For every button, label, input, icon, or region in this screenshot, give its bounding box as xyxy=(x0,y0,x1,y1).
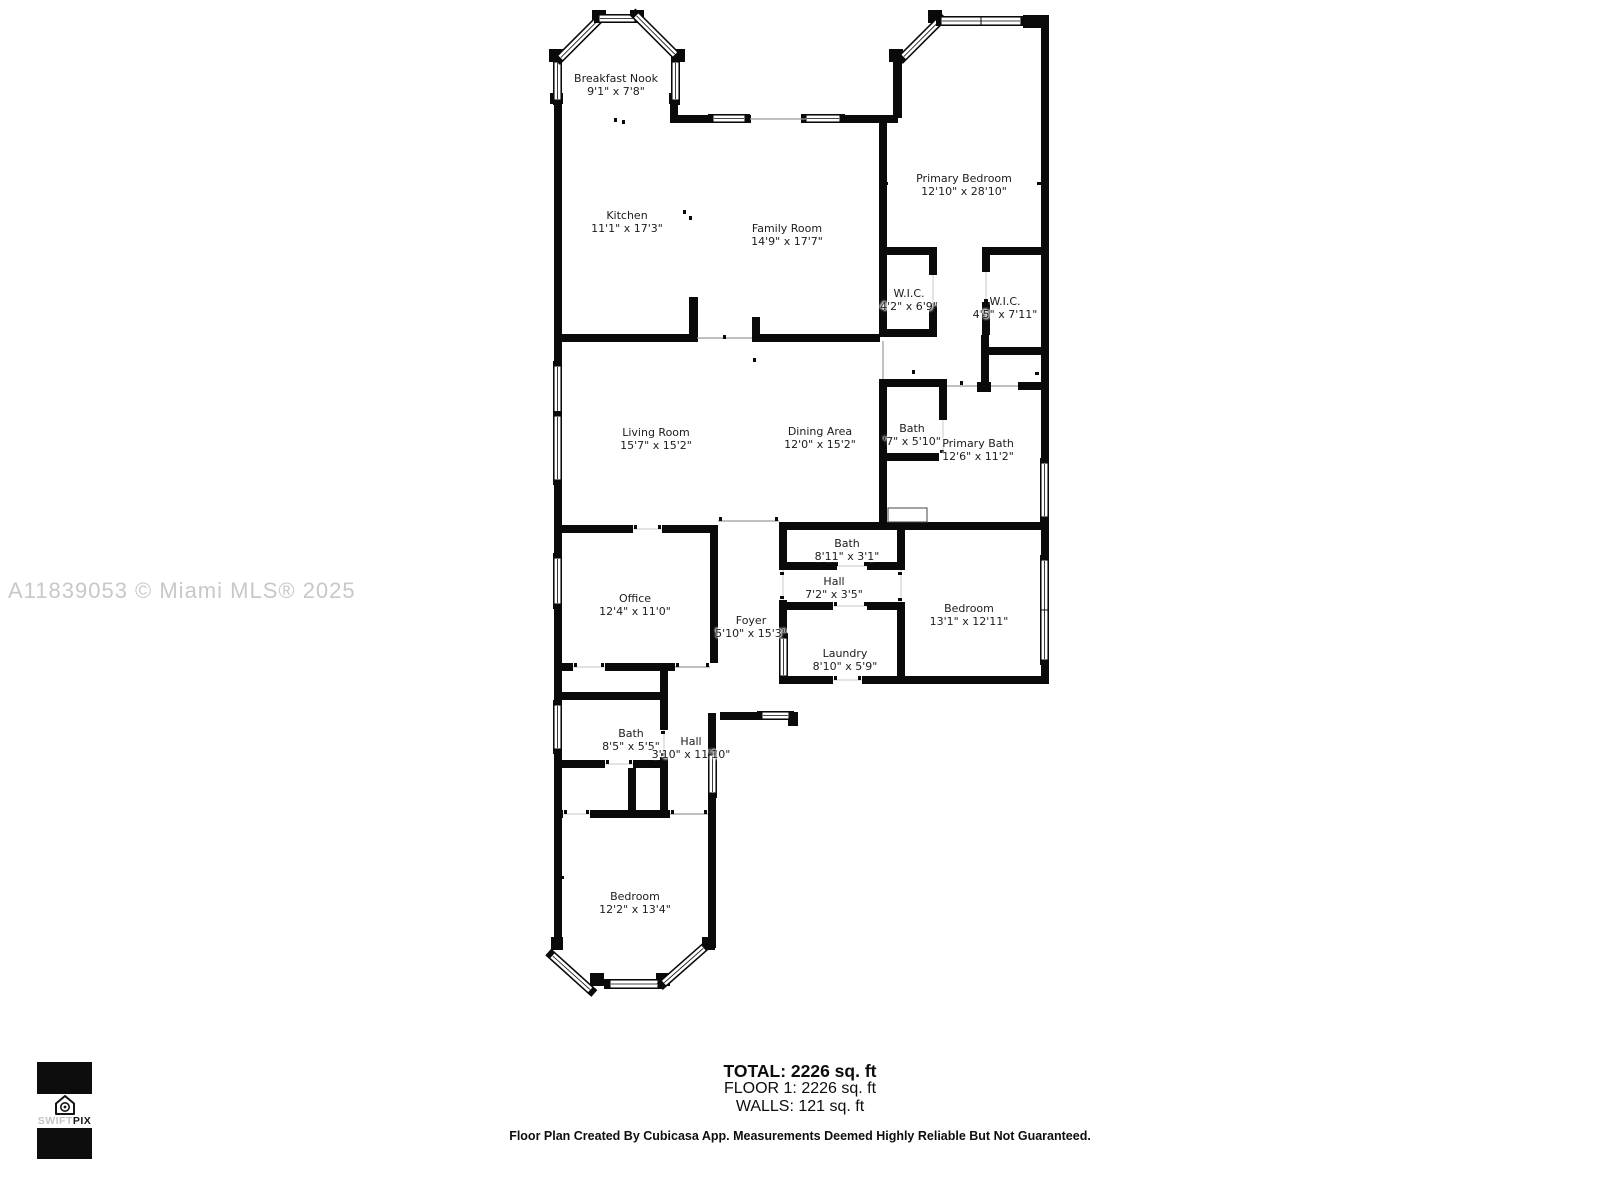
room-dims: 5'10" x 15'3" xyxy=(715,627,787,640)
room-name: Hall xyxy=(652,735,731,748)
room-dims: 8'10" x 5'9" xyxy=(813,660,878,673)
logo-block-bottom xyxy=(37,1128,92,1159)
room-dims: 4'2" x 6'9" xyxy=(880,300,938,313)
logo-wordmark: SWIFTPIX xyxy=(37,1116,92,1126)
room-dims: 12'4" x 11'0" xyxy=(599,605,671,618)
room-label-wic-left: W.I.C.4'2" x 6'9" xyxy=(880,287,938,313)
room-dims: 12'6" x 11'2" xyxy=(942,450,1014,463)
disclaimer-text: Floor Plan Created By Cubicasa App. Meas… xyxy=(509,1129,1091,1143)
room-name: Living Room xyxy=(620,426,692,439)
room-label-bath-middle: Bath8'11" x 3'1" xyxy=(815,537,880,563)
room-dims: 11'1" x 17'3" xyxy=(591,222,663,235)
room-name: Bedroom xyxy=(599,890,671,903)
swiftpix-logo: SWIFTPIX xyxy=(37,1062,92,1159)
room-dims: 12'2" x 13'4" xyxy=(599,903,671,916)
room-label-kitchen: Kitchen11'1" x 17'3" xyxy=(591,209,663,235)
room-name: Kitchen xyxy=(591,209,663,222)
room-label-laundry: Laundry8'10" x 5'9" xyxy=(813,647,878,673)
total-area-text: TOTAL: 2226 sq. ft xyxy=(724,1061,877,1082)
room-name: Hall xyxy=(805,575,863,588)
room-dims: 4'5" x 7'11" xyxy=(973,308,1038,321)
room-label-primary-bath: Primary Bath12'6" x 11'2" xyxy=(942,437,1014,463)
room-dims: 7'2" x 3'5" xyxy=(805,588,863,601)
house-camera-icon xyxy=(37,1094,92,1116)
room-label-primary-bedroom: Primary Bedroom12'10" x 28'10" xyxy=(916,172,1012,198)
room-label-hall-middle: Hall7'2" x 3'5" xyxy=(805,575,863,601)
room-dims: 8'11" x 3'1" xyxy=(815,550,880,563)
room-label-foyer: Foyer5'10" x 15'3" xyxy=(715,614,787,640)
logo-text-swift: SWIFT xyxy=(38,1115,73,1127)
room-name: Office xyxy=(599,592,671,605)
room-name: Bedroom xyxy=(930,602,1009,615)
room-label-family-room: Family Room14'9" x 17'7" xyxy=(751,222,823,248)
room-name: Foyer xyxy=(715,614,787,627)
room-name: Breakfast Nook xyxy=(574,72,658,85)
walls-area-text: WALLS: 121 sq. ft xyxy=(736,1098,864,1116)
room-dims: 15'7" x 15'2" xyxy=(620,439,692,452)
room-dims: 12'10" x 28'10" xyxy=(916,185,1012,198)
room-dims: 9'1" x 7'8" xyxy=(574,85,658,98)
room-name: Family Room xyxy=(751,222,823,235)
room-label-dining-area: Dining Area12'0" x 15'2" xyxy=(784,425,856,451)
room-label-breakfast-nook: Breakfast Nook9'1" x 7'8" xyxy=(574,72,658,98)
room-label-living-room: Living Room15'7" x 15'2" xyxy=(620,426,692,452)
mls-watermark: A11839053 © Miami MLS® 2025 xyxy=(8,578,356,604)
room-label-bedroom-bottom: Bedroom12'2" x 13'4" xyxy=(599,890,671,916)
room-name: Dining Area xyxy=(784,425,856,438)
room-name: Bath xyxy=(883,422,941,435)
logo-text-pix: PIX xyxy=(73,1115,91,1127)
floorplan-page: Breakfast Nook9'1" x 7'8" Kitchen11'1" x… xyxy=(0,0,1599,1185)
room-dims: 13'1" x 12'11" xyxy=(930,615,1009,628)
room-label-hall-lower: Hall3'10" x 11'10" xyxy=(652,735,731,761)
room-dims: 12'0" x 15'2" xyxy=(784,438,856,451)
room-name: Primary Bedroom xyxy=(916,172,1012,185)
room-name: W.I.C. xyxy=(880,287,938,300)
room-label-office: Office12'4" x 11'0" xyxy=(599,592,671,618)
room-name: Primary Bath xyxy=(942,437,1014,450)
room-dims: 3'10" x 11'10" xyxy=(652,748,731,761)
logo-block-top xyxy=(37,1062,92,1094)
room-label-wic-right: W.I.C.4'5" x 7'11" xyxy=(973,295,1038,321)
room-dims: '7" x 5'10" xyxy=(883,435,941,448)
room-label-bath-hall: Bath'7" x 5'10" xyxy=(883,422,941,448)
floor1-area-text: FLOOR 1: 2226 sq. ft xyxy=(724,1080,876,1098)
room-name: Bath xyxy=(815,537,880,550)
room-label-bedroom-right: Bedroom13'1" x 12'11" xyxy=(930,602,1009,628)
room-dims: 14'9" x 17'7" xyxy=(751,235,823,248)
room-name: Laundry xyxy=(813,647,878,660)
room-name: W.I.C. xyxy=(973,295,1038,308)
